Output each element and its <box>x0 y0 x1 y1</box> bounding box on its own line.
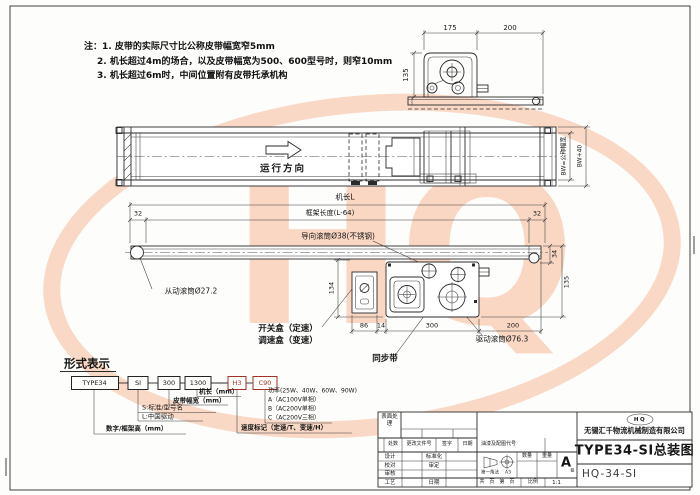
tb-grade-sub: 级 <box>571 469 575 474</box>
label-china-drive: L:中国驱动 <box>142 413 174 420</box>
label-power: 功率(25W、40W、60W、90W) <box>268 388 357 395</box>
label-frame-height: 数字/框架高（mm） <box>106 425 167 432</box>
tb-company: 无锡汇千物流机械制造有限公司 <box>584 426 685 434</box>
tb-col-sign: 签字 <box>442 442 452 448</box>
dim-200-front: 200 <box>507 322 519 329</box>
dim-134: 134 <box>328 282 335 294</box>
dim-32-left: 32 <box>134 210 142 217</box>
label-machine-length: 机长（mm） <box>199 388 239 395</box>
designation-seg-type: TYPE34 <box>71 376 119 390</box>
run-direction-label: 运行方向 <box>260 165 306 176</box>
dim-175: 175 <box>443 24 456 32</box>
note-prefix: 注： <box>84 42 102 52</box>
dim-135-front: 135 <box>563 276 570 288</box>
tb-drawing-no: HQ-34-SI <box>582 468 637 480</box>
designation-seg-300: 300 <box>158 376 181 390</box>
designation-title: 形式表示 <box>64 357 110 370</box>
frame-length-label: 框架长度(L-64) <box>306 209 355 217</box>
tb-standardize: 标准化 <box>426 453 443 459</box>
tb-approve: 审定 <box>428 462 439 468</box>
tb-process: 工艺 <box>384 479 395 485</box>
tb-col-counts: 处数 <box>388 442 398 448</box>
drive-roller-label: 驱动滚筒Ø76.3 <box>476 336 529 345</box>
notes: 注：1. 皮带的实际尺寸比公称皮带幅宽窄5mm 2. 机长超过4m的场合，以及皮… <box>84 40 392 84</box>
timing-belt-label: 同步带 <box>372 355 398 365</box>
switch-box-label: 开关盒（定速） <box>258 325 318 335</box>
tb-sheet-size: A3 <box>505 470 511 475</box>
tb-paint-code: 油漆及配图代号 <box>481 442 516 448</box>
tb-date: 日期 <box>428 479 439 485</box>
belt-width-label: BW=公称幅宽 <box>562 137 569 176</box>
front-view <box>125 202 566 354</box>
label-power-c: C（AC200V三相） <box>268 415 320 422</box>
tb-review: 审核 <box>384 471 395 477</box>
dim-34: 34 <box>551 250 558 258</box>
tb-surface-treat: 表面处理 <box>380 414 399 428</box>
plan-view <box>116 125 590 188</box>
tb-pages: 共 页 第 页 <box>479 480 514 486</box>
tb-qty: 数量 <box>522 454 532 460</box>
tb-drawing-title: TYPE34-SI总装图 <box>575 445 694 460</box>
tb-logo: HQ <box>634 416 646 422</box>
dim-300: 300 <box>426 322 438 329</box>
drawing-sheet: HQ <box>0 0 700 495</box>
speed-box-label: 调速盒（变速） <box>258 337 318 347</box>
frame-width-label: BW+40 <box>578 145 585 168</box>
tb-col-change-doc: 更改文件号 <box>406 442 431 448</box>
tb-scale-value: 1:1 <box>552 479 561 485</box>
note-line-2: 2. 机长超过4m的场合，以及皮带幅宽为500、600型号时，则窄10mm <box>84 55 392 70</box>
dim-200-side: 200 <box>503 24 516 32</box>
label-speed-mark: 速度标记（定速/T、变速/H） <box>241 424 327 431</box>
guide-roller-label: 导向滚筒Ø38(不锈钢) <box>301 233 375 242</box>
designation-seg-si: SI <box>128 376 149 390</box>
note-line-3: 3. 机长超过6m时，中间位置附有皮带托承机构 <box>84 69 392 84</box>
note-line-1: 注：1. 皮带的实际尺寸比公称皮带幅宽窄5mm <box>84 40 392 55</box>
tb-scale-label: 比例 <box>528 480 538 486</box>
driven-roller-label: 从动滚筒Ø27.2 <box>165 288 218 297</box>
tb-projection: 第一角法 <box>481 470 499 475</box>
side-view <box>408 30 545 109</box>
dim-135-side: 135 <box>402 68 410 81</box>
label-power-a: A（AC100V单相） <box>268 397 320 404</box>
dim-14: 14 <box>377 322 385 329</box>
tb-col-date: 日期 <box>462 442 472 448</box>
tb-check: 校对 <box>384 462 395 468</box>
label-power-b: B（AC200V单相） <box>268 406 320 413</box>
dim-86: 86 <box>360 322 368 329</box>
label-standard: S:标准/型号名 <box>142 404 183 411</box>
dim-32-right: 32 <box>533 210 541 217</box>
tb-weight: 重量 <box>542 454 552 460</box>
tb-design: 设计 <box>384 453 395 459</box>
machine-length-label: 机长L <box>335 194 354 203</box>
